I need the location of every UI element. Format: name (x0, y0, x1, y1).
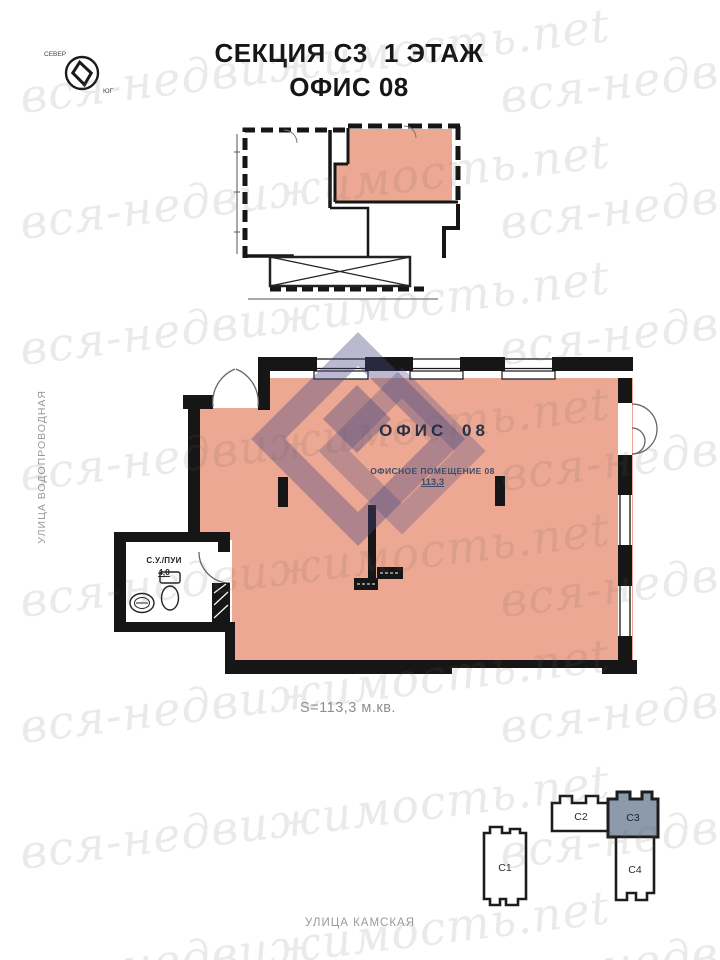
title-line-1: СЕКЦИЯ С31 ЭТАЖ (104, 38, 594, 69)
office-title-label: ОФИС 08 (364, 421, 504, 441)
compass-needle-icon (71, 60, 93, 86)
street-left-text: УЛИЦА ВОДОПРОВОДНАЯ (36, 390, 48, 544)
overview-stairs-area (270, 257, 410, 286)
title-floor: 1 ЭТАЖ (384, 38, 484, 68)
section-map: С1 С2 С3 С4 (468, 783, 673, 923)
pillar (278, 477, 288, 507)
street-label-left: УЛИЦА ВОДОПРОВОДНАЯ (30, 382, 54, 552)
main-floor-plan (100, 335, 675, 700)
overview-highlighted-unit (335, 129, 452, 202)
toilet-icon (160, 572, 180, 610)
section-c1-label: С1 (498, 862, 512, 874)
floor-plan-page: СЕКЦИЯ С31 ЭТАЖ ОФИС 08 СЕВЕР ЮГ (0, 0, 720, 960)
wc-name-label: С.У./ПУИ (121, 556, 207, 565)
overview-plan (228, 112, 476, 307)
title-office: ОФИС 08 (104, 72, 594, 103)
sink-icon (130, 594, 154, 613)
window (618, 403, 632, 636)
watermark-text: вся-недвижимость.net (497, 124, 720, 250)
section-c3-label: С3 (626, 812, 640, 824)
section-c2-label: С2 (574, 811, 588, 823)
compass-north-label: СЕВЕР (44, 51, 66, 58)
bottom-wall-step (452, 668, 602, 674)
total-area-label: S=113,3 м.кв. (300, 700, 396, 716)
room-area-label: 113,3 (350, 477, 515, 488)
street-label-bottom: УЛИЦА КАМСКАЯ (290, 917, 430, 929)
window (314, 357, 555, 379)
title-section: СЕКЦИЯ С3 (214, 38, 367, 68)
page-title: СЕКЦИЯ С31 ЭТАЖ ОФИС 08 (104, 38, 594, 103)
room-name-label: ОФИСНОЕ ПОМЕЩЕНИЕ 08 (350, 466, 515, 476)
wc-area-label: 4,0 (121, 567, 207, 577)
section-c4-label: С4 (628, 864, 642, 876)
